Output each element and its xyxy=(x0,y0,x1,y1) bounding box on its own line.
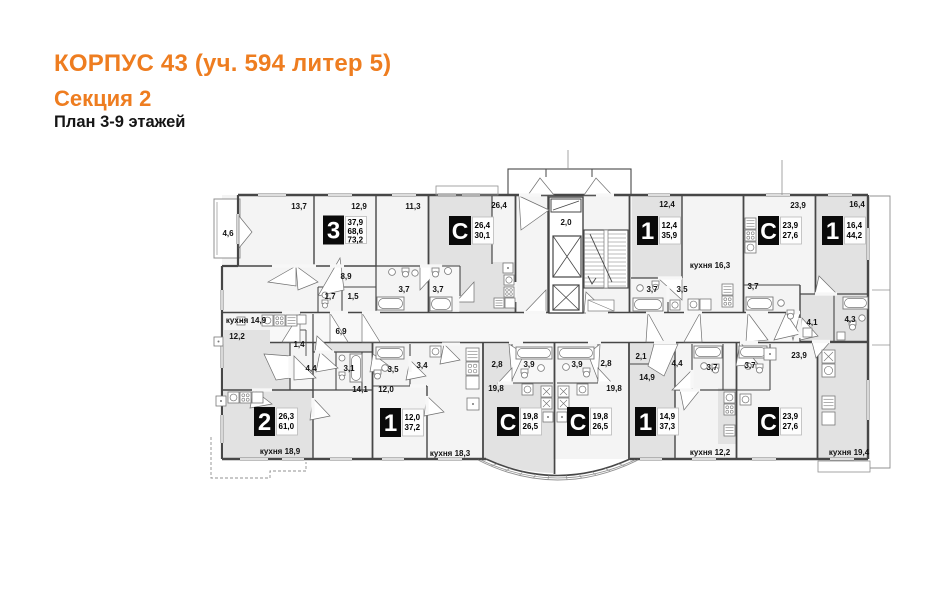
svg-text:35,9: 35,9 xyxy=(662,231,678,240)
svg-text:1,5: 1,5 xyxy=(347,292,359,301)
svg-text:3,5: 3,5 xyxy=(387,365,399,374)
svg-text:37,9: 37,9 xyxy=(348,218,364,227)
svg-text:14,9: 14,9 xyxy=(639,373,655,382)
svg-text:26,4: 26,4 xyxy=(475,221,491,230)
svg-text:3,7: 3,7 xyxy=(646,285,658,294)
svg-text:12,0: 12,0 xyxy=(405,413,421,422)
svg-text:С: С xyxy=(500,409,517,435)
svg-text:2,0: 2,0 xyxy=(560,218,572,227)
svg-text:3,7: 3,7 xyxy=(432,285,444,294)
svg-text:4,6: 4,6 xyxy=(222,229,234,238)
svg-text:1: 1 xyxy=(639,409,652,436)
svg-text:26,4: 26,4 xyxy=(491,201,507,210)
svg-text:кухня 19,4: кухня 19,4 xyxy=(829,448,870,457)
svg-text:12,0: 12,0 xyxy=(378,385,394,394)
svg-text:3,1: 3,1 xyxy=(343,364,355,373)
svg-text:1: 1 xyxy=(826,218,839,245)
svg-text:19,8: 19,8 xyxy=(606,384,622,393)
svg-text:26,3: 26,3 xyxy=(279,412,295,421)
svg-text:1: 1 xyxy=(384,410,397,437)
svg-text:44,2: 44,2 xyxy=(847,231,863,240)
svg-text:кухня 12,2: кухня 12,2 xyxy=(690,448,731,457)
svg-text:16,4: 16,4 xyxy=(849,200,865,209)
svg-text:С: С xyxy=(760,218,777,244)
svg-text:3,4: 3,4 xyxy=(416,361,428,370)
svg-text:13,7: 13,7 xyxy=(291,202,307,211)
svg-text:кухня 18,3: кухня 18,3 xyxy=(430,449,471,458)
svg-text:8,9: 8,9 xyxy=(340,272,352,281)
svg-text:3,5: 3,5 xyxy=(676,285,688,294)
svg-text:37,3: 37,3 xyxy=(660,422,676,431)
svg-text:С: С xyxy=(452,218,469,244)
svg-text:6,9: 6,9 xyxy=(335,327,347,336)
svg-text:12,2: 12,2 xyxy=(229,332,245,341)
svg-text:11,3: 11,3 xyxy=(405,202,421,211)
svg-text:2,8: 2,8 xyxy=(491,360,503,369)
svg-text:3,7: 3,7 xyxy=(744,361,756,370)
svg-text:19,8: 19,8 xyxy=(488,384,504,393)
svg-text:1: 1 xyxy=(641,218,654,245)
svg-text:кухня 16,3: кухня 16,3 xyxy=(690,261,731,270)
svg-text:27,6: 27,6 xyxy=(783,422,799,431)
svg-text:4,1: 4,1 xyxy=(806,318,818,327)
svg-text:14,9: 14,9 xyxy=(660,412,676,421)
svg-text:3,7: 3,7 xyxy=(747,282,759,291)
svg-text:37,2: 37,2 xyxy=(405,423,421,432)
svg-text:3,9: 3,9 xyxy=(571,360,583,369)
svg-text:30,1: 30,1 xyxy=(475,231,491,240)
svg-text:2,1: 2,1 xyxy=(635,352,647,361)
svg-text:12,4: 12,4 xyxy=(662,221,678,230)
svg-text:23,9: 23,9 xyxy=(783,221,799,230)
svg-text:14,1: 14,1 xyxy=(352,385,368,394)
svg-text:26,5: 26,5 xyxy=(523,422,539,431)
svg-text:С: С xyxy=(760,409,777,435)
svg-text:19,8: 19,8 xyxy=(523,412,539,421)
svg-text:23,9: 23,9 xyxy=(791,351,807,360)
svg-text:12,4: 12,4 xyxy=(659,200,675,209)
svg-text:12,9: 12,9 xyxy=(351,202,367,211)
svg-text:19,8: 19,8 xyxy=(593,412,609,421)
svg-text:4,4: 4,4 xyxy=(305,364,317,373)
svg-text:3,7: 3,7 xyxy=(398,285,410,294)
svg-text:23,9: 23,9 xyxy=(783,412,799,421)
svg-text:23,9: 23,9 xyxy=(790,201,806,210)
svg-text:2: 2 xyxy=(258,409,271,436)
svg-text:2,8: 2,8 xyxy=(600,359,612,368)
svg-text:4,4: 4,4 xyxy=(671,359,683,368)
svg-text:4,3: 4,3 xyxy=(844,315,856,324)
svg-text:1,7: 1,7 xyxy=(324,292,336,301)
svg-text:3,9: 3,9 xyxy=(523,360,535,369)
svg-text:61,0: 61,0 xyxy=(279,422,295,431)
svg-text:26,5: 26,5 xyxy=(593,422,609,431)
svg-text:С: С xyxy=(570,409,587,435)
svg-text:1,4: 1,4 xyxy=(293,340,305,349)
svg-text:3: 3 xyxy=(327,218,340,245)
svg-text:кухня 14,9: кухня 14,9 xyxy=(226,316,267,325)
svg-text:кухня 18,9: кухня 18,9 xyxy=(260,447,301,456)
svg-text:73,2: 73,2 xyxy=(348,236,364,245)
svg-text:16,4: 16,4 xyxy=(847,221,863,230)
svg-text:3,7: 3,7 xyxy=(706,363,718,372)
svg-text:27,6: 27,6 xyxy=(783,231,799,240)
